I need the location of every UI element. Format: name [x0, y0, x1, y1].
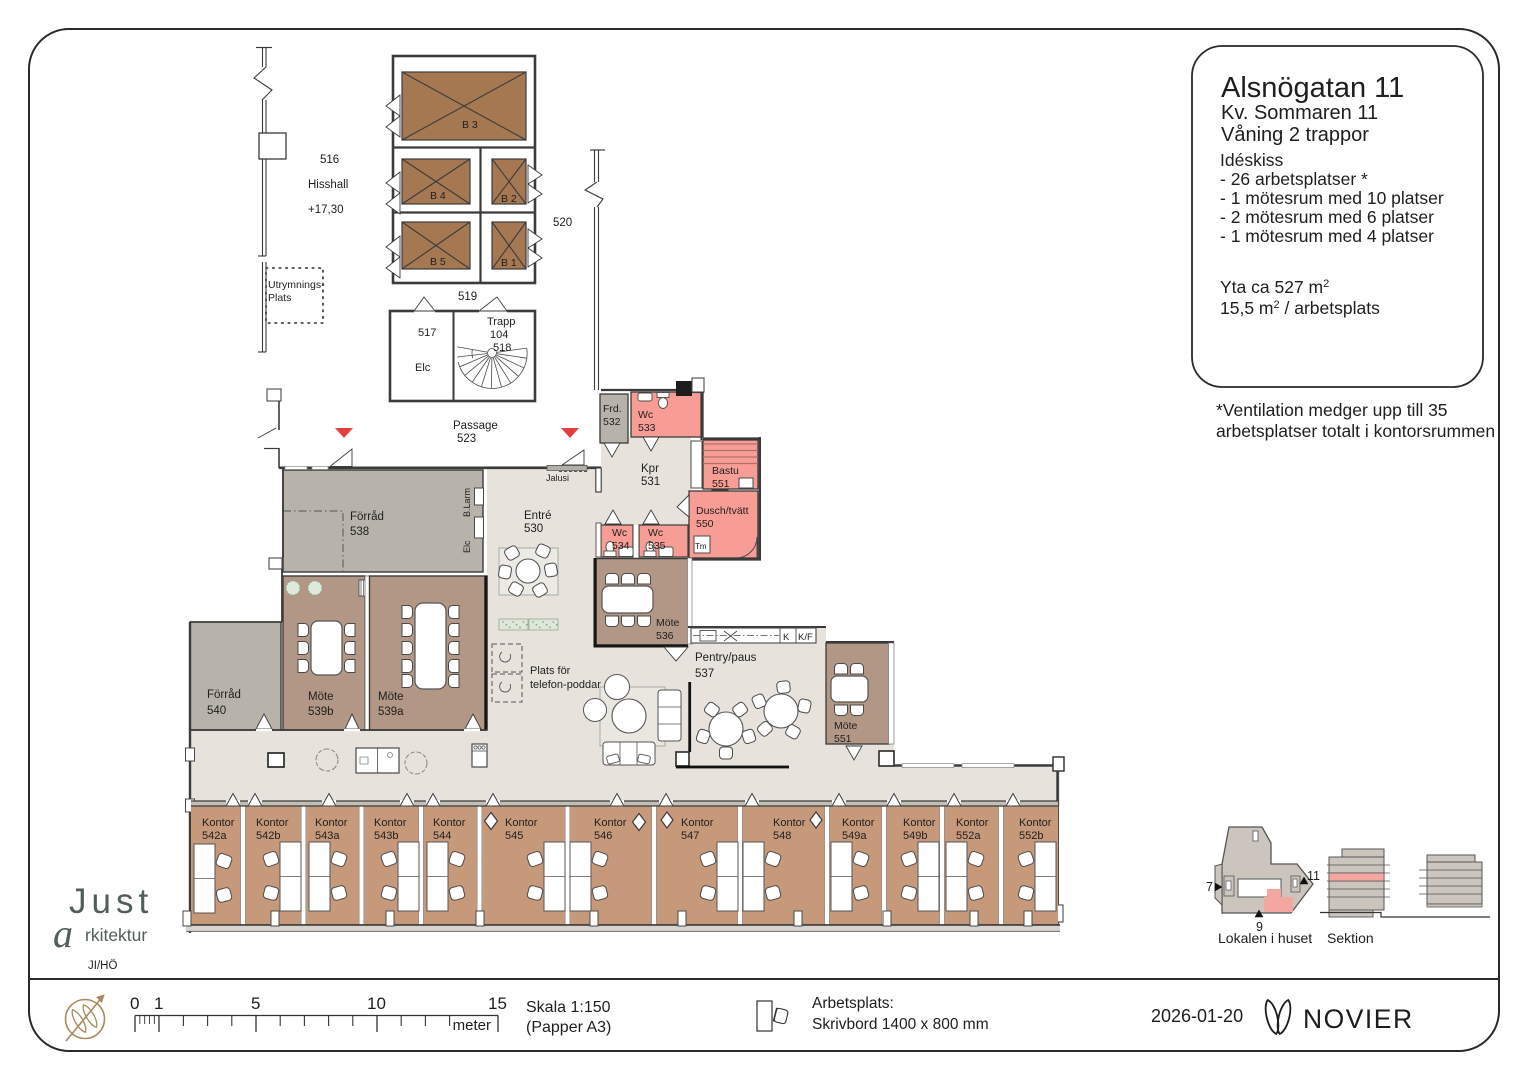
svg-text:Möte: Möte [656, 617, 680, 629]
svg-text:Skrivbord 1400 x 800 mm: Skrivbord 1400 x 800 mm [812, 1016, 989, 1033]
svg-text:Hisshall: Hisshall [308, 179, 348, 191]
svg-text:B 1: B 1 [501, 257, 517, 269]
svg-text:548: 548 [773, 830, 791, 842]
svg-text:Wc: Wc [648, 527, 663, 539]
svg-text:523: 523 [457, 433, 476, 445]
svg-text:542a: 542a [202, 830, 227, 842]
svg-text:Elc: Elc [415, 362, 431, 374]
svg-text:Skala 1:150: Skala 1:150 [526, 999, 611, 1016]
svg-text:546: 546 [594, 830, 612, 842]
svg-text:Dusch/tvätt: Dusch/tvätt [696, 505, 749, 517]
svg-text:Sektion: Sektion [1327, 930, 1374, 946]
svg-text:Förråd: Förråd [207, 689, 241, 701]
svg-text:Passage: Passage [453, 420, 498, 432]
svg-text:519: 519 [458, 291, 477, 303]
svg-text:Lokalen i huset: Lokalen i huset [1218, 930, 1312, 946]
svg-text:0: 0 [130, 994, 139, 1013]
svg-text:B 3: B 3 [462, 119, 478, 131]
svg-text:Kontor: Kontor [505, 817, 538, 829]
svg-text:532: 532 [603, 416, 621, 428]
svg-text:536: 536 [656, 630, 674, 642]
svg-text:- 2 mötesrum med 6 platser: - 2 mötesrum med 6 platser [1220, 207, 1434, 227]
svg-text:telefon-poddar: telefon-poddar [530, 679, 601, 691]
svg-text:539a: 539a [378, 706, 404, 718]
svg-text:10: 10 [367, 994, 386, 1013]
svg-text:Wc: Wc [612, 527, 627, 539]
svg-text:Kontor: Kontor [256, 817, 289, 829]
svg-text:15,5 m2 / arbetsplats: 15,5 m2 / arbetsplats [1220, 298, 1380, 318]
svg-text:- 26 arbetsplatser *: - 26 arbetsplatser * [1220, 169, 1368, 189]
svg-text:meter: meter [453, 1017, 491, 1034]
svg-text:B 4: B 4 [430, 190, 446, 202]
svg-text:Möte: Möte [834, 720, 858, 732]
svg-text:Arbetsplats:: Arbetsplats: [812, 995, 894, 1012]
svg-text:Kontor: Kontor [842, 817, 875, 829]
svg-text:K: K [783, 632, 790, 643]
svg-text:Utrymnings-: Utrymnings- [268, 279, 325, 291]
svg-text:- 1 mötesrum med 10 platser: - 1 mötesrum med 10 platser [1220, 188, 1444, 208]
svg-text:Plats: Plats [268, 292, 291, 304]
svg-text:B.Larm: B.Larm [462, 488, 472, 517]
svg-text:551: 551 [712, 478, 730, 490]
svg-text:Möte: Möte [378, 691, 404, 703]
svg-text:520: 520 [553, 217, 572, 229]
svg-text:Kontor: Kontor [903, 817, 936, 829]
svg-text:11: 11 [1307, 869, 1320, 883]
svg-text:516: 516 [320, 154, 339, 166]
svg-text:rkitektur: rkitektur [85, 925, 147, 945]
svg-text:Wc: Wc [638, 409, 653, 421]
svg-text:537: 537 [695, 668, 714, 680]
svg-text:530: 530 [524, 523, 543, 535]
svg-text:518: 518 [493, 342, 511, 354]
svg-text:NOVIER: NOVIER [1303, 1004, 1414, 1034]
svg-text:Förråd: Förråd [350, 511, 384, 523]
svg-text:Kontor: Kontor [773, 817, 806, 829]
svg-text:B 2: B 2 [501, 193, 517, 205]
svg-text:7: 7 [1206, 880, 1213, 894]
svg-text:534: 534 [612, 540, 630, 552]
svg-text:531: 531 [641, 476, 660, 488]
svg-text:Yta ca 527 m2: Yta ca 527 m2 [1220, 277, 1329, 297]
svg-text:540: 540 [207, 705, 226, 717]
svg-text:- 1 mötesrum med 4 platser: - 1 mötesrum med 4 platser [1220, 226, 1434, 246]
svg-text:Kv. Sommaren 11: Kv. Sommaren 11 [1221, 102, 1378, 124]
svg-text:Pentry/paus: Pentry/paus [695, 652, 757, 664]
svg-text:549a: 549a [842, 830, 867, 842]
svg-text:+17,30: +17,30 [308, 204, 344, 216]
svg-text:Kontor: Kontor [1019, 817, 1052, 829]
svg-text:539b: 539b [308, 706, 334, 718]
svg-text:Kontor: Kontor [374, 817, 407, 829]
svg-text:551: 551 [834, 733, 852, 745]
svg-text:JI/HÖ: JI/HÖ [88, 960, 117, 972]
svg-text:Tm: Tm [695, 542, 707, 551]
svg-text:K/F: K/F [798, 632, 813, 643]
svg-text:Plats för: Plats för [530, 665, 571, 677]
svg-text:Idéskiss: Idéskiss [1220, 150, 1283, 170]
svg-text:543b: 543b [374, 830, 398, 842]
svg-text:Kontor: Kontor [315, 817, 348, 829]
svg-text:Kontor: Kontor [681, 817, 714, 829]
svg-text:545: 545 [505, 830, 523, 842]
svg-text:517: 517 [418, 327, 436, 339]
svg-text:Jalusi: Jalusi [546, 473, 569, 483]
svg-text:(Papper A3): (Papper A3) [526, 1019, 611, 1036]
svg-text:*Ventilation medger upp till 3: *Ventilation medger upp till 35 [1216, 400, 1448, 420]
svg-text:Kpr: Kpr [641, 463, 659, 475]
svg-text:arbetsplatser totalt i kontors: arbetsplatser totalt i kontorsrummen [1216, 421, 1495, 441]
svg-text:Våning 2 trappor: Våning 2 trappor [1221, 124, 1369, 146]
svg-text:B 5: B 5 [430, 256, 446, 268]
svg-text:Trapp: Trapp [487, 316, 515, 328]
svg-text:543a: 543a [315, 830, 340, 842]
svg-text:Alsnögatan 11: Alsnögatan 11 [1221, 72, 1404, 104]
svg-text:544: 544 [433, 830, 451, 842]
svg-text:552a: 552a [956, 830, 981, 842]
svg-text:Möte: Möte [308, 691, 334, 703]
svg-text:Just: Just [69, 882, 153, 921]
svg-text:552b: 552b [1019, 830, 1043, 842]
svg-text:15: 15 [488, 994, 507, 1013]
svg-text:Kontor: Kontor [594, 817, 627, 829]
svg-text:535: 535 [648, 540, 666, 552]
svg-text:538: 538 [350, 526, 369, 538]
svg-text:104: 104 [490, 329, 508, 341]
svg-text:550: 550 [696, 518, 714, 530]
svg-text:Kontor: Kontor [202, 817, 235, 829]
svg-text:Entré: Entré [524, 510, 552, 522]
svg-text:549b: 549b [903, 830, 927, 842]
svg-text:Elc: Elc [462, 540, 472, 553]
svg-text:2026-01-20: 2026-01-20 [1151, 1006, 1243, 1026]
svg-text:Kontor: Kontor [956, 817, 989, 829]
svg-text:Frd.: Frd. [603, 403, 622, 415]
svg-text:Kontor: Kontor [433, 817, 466, 829]
svg-text:547: 547 [681, 830, 699, 842]
svg-text:533: 533 [638, 422, 656, 434]
svg-text:1: 1 [154, 994, 163, 1013]
svg-text:Bastu: Bastu [712, 465, 739, 477]
svg-text:5: 5 [251, 994, 260, 1013]
svg-text:542b: 542b [256, 830, 280, 842]
svg-text:a: a [53, 911, 73, 956]
